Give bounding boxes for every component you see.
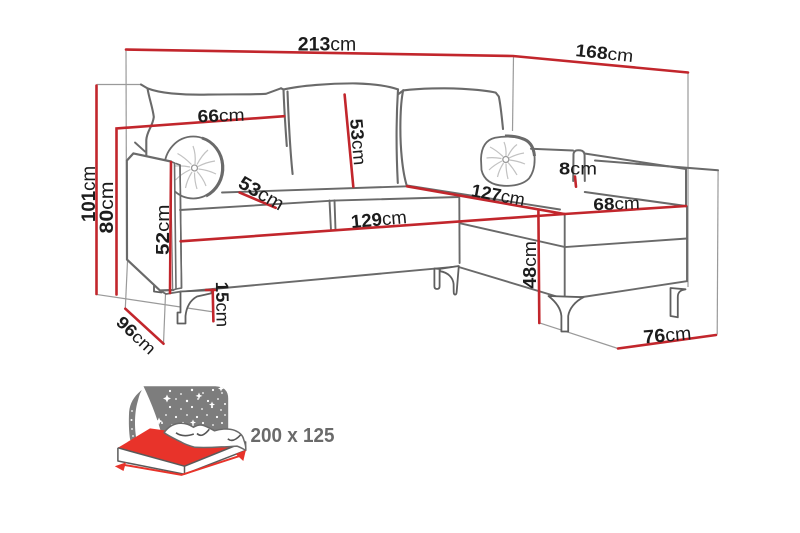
svg-text:213cm: 213cm [298,35,357,56]
svg-text:48cm: 48cm [519,241,540,289]
svg-text:66cm: 66cm [197,105,245,127]
svg-text:68cm: 68cm [593,194,640,215]
svg-text:200 x 125: 200 x 125 [251,425,335,447]
svg-text:15cm: 15cm [212,282,233,328]
svg-text:8cm: 8cm [559,159,597,179]
svg-text:53cm: 53cm [346,118,370,166]
svg-text:129cm: 129cm [350,206,408,232]
svg-text:76cm: 76cm [643,323,693,348]
svg-text:80cm: 80cm [97,182,118,234]
svg-text:52cm: 52cm [152,205,173,256]
